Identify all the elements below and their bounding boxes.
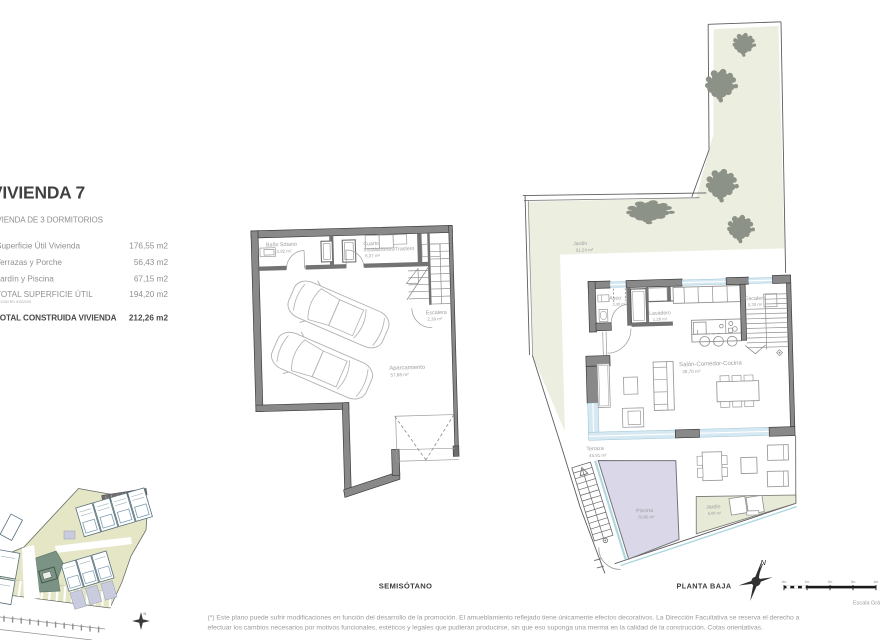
svg-text:0m: 0m (782, 580, 787, 584)
svg-text:N: N (761, 558, 767, 567)
svg-text:TOTAL CONSTRUIDA VIVIENDA: TOTAL CONSTRUIDA VIVIENDA (0, 313, 117, 322)
svg-text:efectuar los cambios necesario: efectuar los cambios necesarios por moti… (208, 625, 764, 632)
svg-text:Jardín: Jardín (573, 241, 587, 247)
svg-text:N: N (144, 612, 147, 616)
svg-text:4m: 4m (874, 580, 879, 584)
svg-text:56,43 m2: 56,43 m2 (134, 258, 169, 267)
svg-text:3,30 m²: 3,30 m² (612, 301, 626, 306)
svg-text:PLANTA BAJA: PLANTA BAJA (676, 581, 731, 590)
svg-text:6,37 m²: 6,37 m² (365, 253, 381, 258)
svg-text:67,15 m2: 67,15 m2 (134, 275, 169, 284)
svg-text:5,30 m²: 5,30 m² (748, 302, 763, 307)
svg-text:194,20 m2: 194,20 m2 (129, 290, 168, 299)
svg-text:Aparcamiento: Aparcamiento (389, 365, 425, 372)
svg-text:1,28 m²: 1,28 m² (653, 316, 668, 321)
svg-text:Jardín y Piscina: Jardín y Piscina (0, 275, 54, 284)
svg-text:(*) Este plano puede sufrir mo: (*) Este plano puede sufrir modificacion… (208, 615, 800, 622)
svg-text:70,85 m²: 70,85 m² (638, 514, 655, 519)
svg-text:Terraza: Terraza (586, 446, 604, 452)
svg-text:VIVIENDA 7: VIVIENDA 7 (0, 183, 85, 203)
svg-text:3,92 m²: 3,92 m² (276, 248, 292, 253)
svg-text:212,26 m2: 212,26 m2 (129, 313, 169, 322)
svg-text:Superficie Útil Vivienda: Superficie Útil Vivienda (0, 240, 80, 250)
svg-text:SEGÚN RD 515/2005: SEGÚN RD 515/2005 (0, 299, 31, 304)
svg-text:Escala Gráfica: Escala Gráfica (853, 601, 880, 607)
svg-text:2,39 m²: 2,39 m² (427, 316, 443, 321)
svg-text:SEMISÓTANO: SEMISÓTANO (379, 581, 433, 590)
svg-text:VIVIENDA DE 3 DORMITORIOS: VIVIENDA DE 3 DORMITORIOS (0, 216, 103, 225)
svg-text:39,70 m²: 39,70 m² (682, 369, 701, 375)
svg-text:6,08 m²: 6,08 m² (708, 510, 722, 515)
svg-text:45,91 m²: 45,91 m² (589, 453, 607, 458)
svg-text:176,55 m2: 176,55 m2 (129, 241, 168, 250)
svg-text:2m: 2m (828, 580, 833, 584)
svg-text:57,88 m²: 57,88 m² (390, 372, 409, 378)
svg-text:Escalera: Escalera (426, 310, 447, 317)
svg-text:1m: 1m (805, 580, 810, 584)
svg-text:51,24 m²: 51,24 m² (576, 247, 594, 252)
svg-text:3m: 3m (851, 580, 856, 584)
svg-text:Terrazas y Porche: Terrazas y Porche (0, 258, 62, 267)
svg-text:TOTAL SUPERFICIE ÚTIL: TOTAL SUPERFICIE ÚTIL (0, 289, 93, 299)
